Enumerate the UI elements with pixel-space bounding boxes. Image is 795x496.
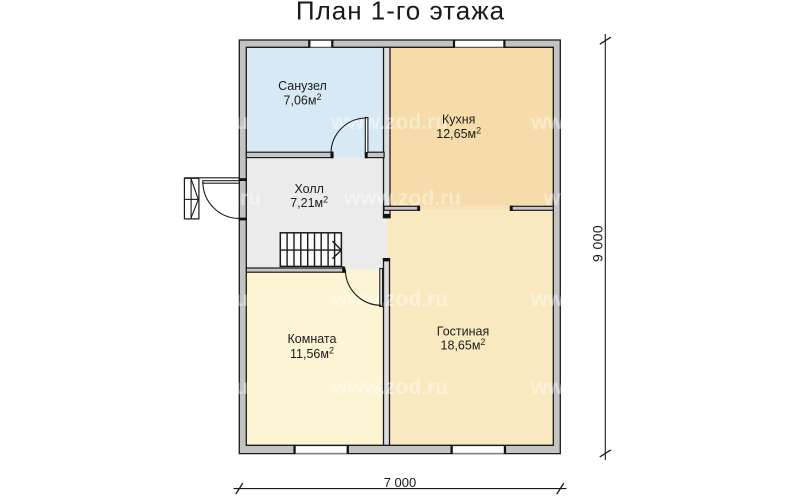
svg-text:7,06м2: 7,06м2 xyxy=(284,92,322,108)
svg-text:www.zod.ru: www.zod.ru xyxy=(130,288,248,311)
svg-text:9 000: 9 000 xyxy=(590,225,606,262)
svg-text:www.zod.ru: www.zod.ru xyxy=(730,111,795,134)
svg-text:www.zod.ru: www.zod.ru xyxy=(130,111,248,134)
svg-text:www.zod.ru: www.zod.ru xyxy=(330,376,448,399)
svg-text:www.zod.ru: www.zod.ru xyxy=(330,288,448,311)
svg-text:7 000: 7 000 xyxy=(384,475,417,490)
svg-text:www.zod.ru: www.zod.ru xyxy=(730,288,795,311)
svg-text:www.zod.ru: www.zod.ru xyxy=(343,187,461,210)
svg-text:www.zod.ru: www.zod.ru xyxy=(143,187,261,210)
svg-text:Холл: Холл xyxy=(294,182,323,196)
svg-text:www.zod.ru: www.zod.ru xyxy=(530,288,648,311)
svg-text:www.zod.ru: www.zod.ru xyxy=(330,111,448,134)
svg-text:www.zod.ru: www.zod.ru xyxy=(130,376,248,399)
svg-text:www.zod.ru: www.zod.ru xyxy=(743,187,795,210)
svg-text:Кухня: Кухня xyxy=(442,113,475,127)
svg-text:www.zod.ru: www.zod.ru xyxy=(543,187,661,210)
svg-text:План 1-го этажа: План 1-го этажа xyxy=(296,0,505,26)
svg-text:www.zod.ru: www.zod.ru xyxy=(530,376,648,399)
svg-text:www.zod.ru: www.zod.ru xyxy=(730,376,795,399)
svg-text:www.zod.ru: www.zod.ru xyxy=(530,111,648,134)
svg-text:7,21м2: 7,21м2 xyxy=(290,194,328,210)
svg-text:18,65м2: 18,65м2 xyxy=(441,337,486,353)
svg-text:11,56м2: 11,56м2 xyxy=(290,345,334,361)
svg-text:12,65м2: 12,65м2 xyxy=(436,126,481,142)
svg-text:Комната: Комната xyxy=(288,332,337,346)
